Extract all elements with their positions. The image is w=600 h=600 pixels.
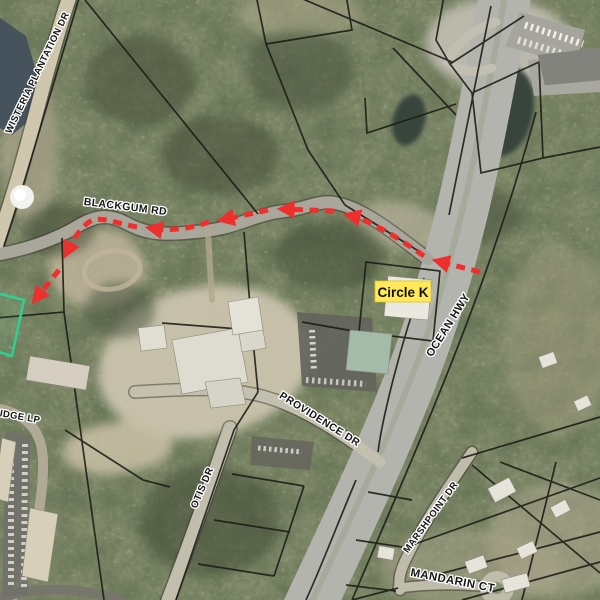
water-tank [10,185,34,209]
map-canvas[interactable]: WISTERIA PLANTATION DR BLACKGUM RD OCEAN… [0,0,600,600]
poi-label-circle-k-text: Circle K [377,285,428,300]
satellite-map: WISTERIA PLANTATION DR BLACKGUM RD OCEAN… [0,0,600,600]
poi-label-circle-k: Circle K [375,281,431,302]
